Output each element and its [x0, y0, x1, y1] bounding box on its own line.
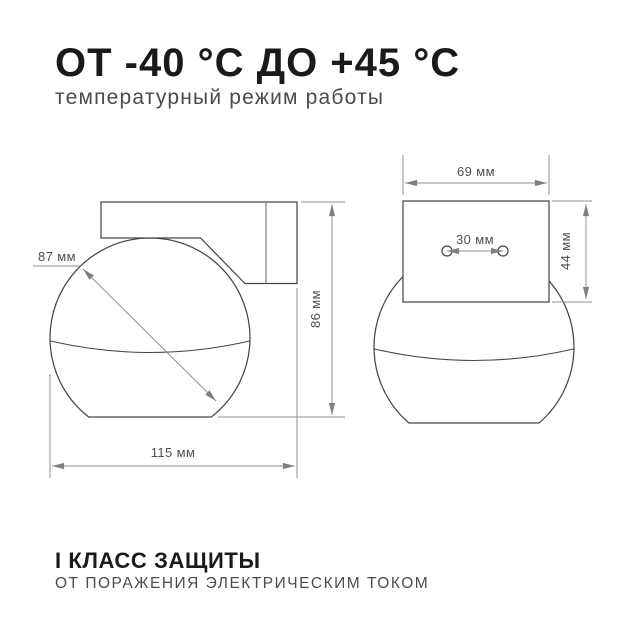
front-view-drawing: 30 мм 69 мм 44 мм: [374, 155, 592, 423]
protection-class-title: I КЛАСС ЗАЩИТЫ: [55, 550, 429, 572]
hole-spacing-label: 30 мм: [456, 232, 494, 247]
bracket-height-label: 44 мм: [558, 232, 573, 270]
technical-drawing: 87 мм 115 мм 86 мм 30 мм 69 мм 44 м: [0, 0, 630, 630]
diameter-label: 87 мм: [38, 249, 76, 264]
side-sphere-outline: [50, 238, 250, 417]
height-label: 86 мм: [308, 290, 323, 328]
side-view-drawing: 87 мм 115 мм 86 мм: [33, 202, 345, 478]
bracket-width-label: 69 мм: [457, 164, 495, 179]
footer: I КЛАСС ЗАЩИТЫ ОТ ПОРАЖЕНИЯ ЭЛЕКТРИЧЕСКИ…: [55, 550, 429, 592]
protection-class-subtitle: ОТ ПОРАЖЕНИЯ ЭЛЕКТРИЧЕСКИМ ТОКОМ: [55, 576, 429, 592]
width-label: 115 мм: [151, 445, 196, 460]
